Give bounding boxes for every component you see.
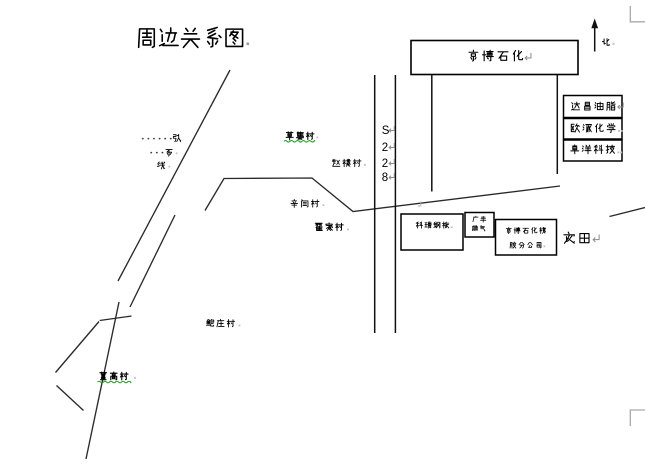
svg-text:2: 2 (382, 142, 388, 154)
svg-text:2: 2 (382, 158, 388, 170)
svg-text:8: 8 (382, 172, 388, 184)
svg-text:S: S (382, 125, 390, 137)
